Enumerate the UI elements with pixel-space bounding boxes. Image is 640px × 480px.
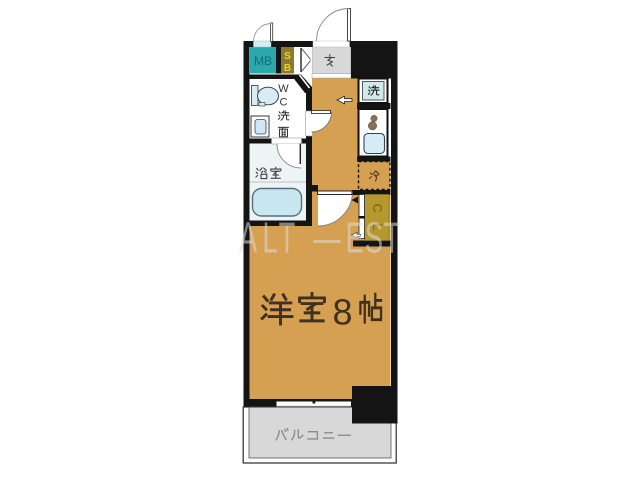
svg-text:W: W	[278, 83, 289, 95]
svg-text:ALT—EST: ALT—EST	[239, 213, 400, 262]
svg-text:8: 8	[332, 292, 352, 333]
svg-text:C: C	[280, 97, 288, 109]
svg-text:B: B	[284, 63, 291, 74]
svg-text:C: C	[370, 203, 384, 212]
svg-text:MB: MB	[254, 54, 272, 68]
svg-text:S: S	[284, 51, 291, 62]
